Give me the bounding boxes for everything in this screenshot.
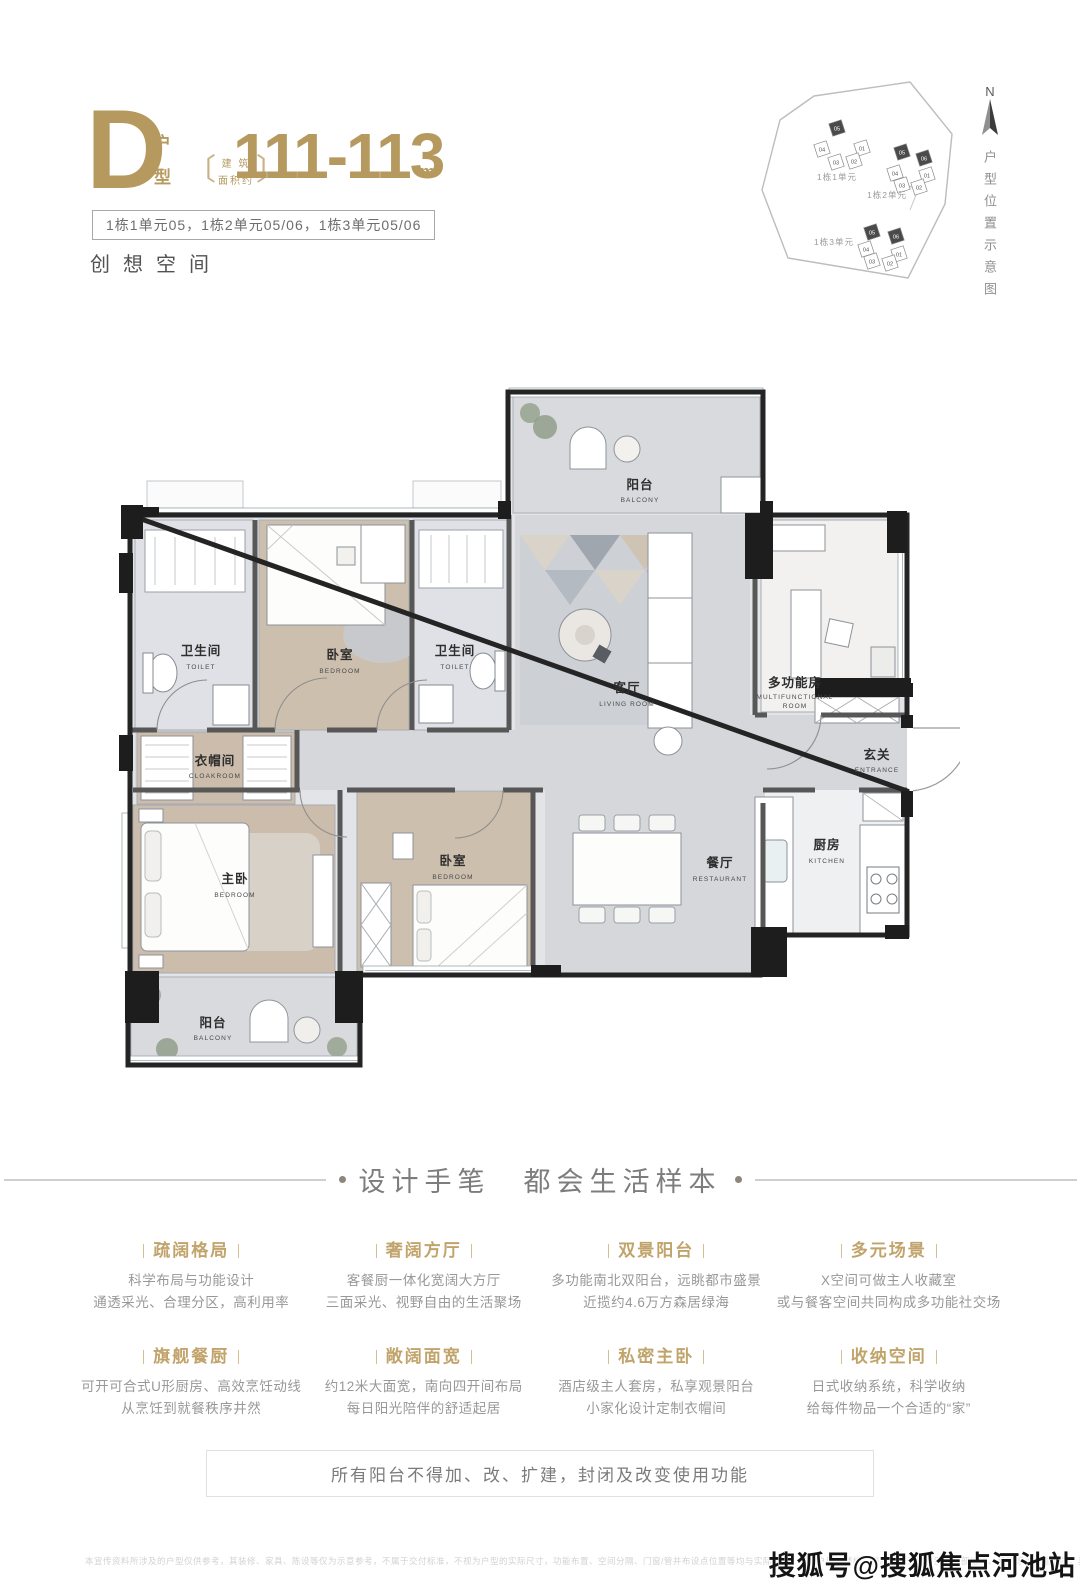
label-bedroom-mid-en: BEDROOM bbox=[432, 874, 473, 881]
label-toilet-right-en: TOILET bbox=[440, 664, 469, 671]
balcony-basin bbox=[570, 427, 606, 469]
room-cloakroom bbox=[137, 732, 295, 804]
site-cluster-label: 1栋1单元 bbox=[817, 172, 857, 182]
feature-line: 从烹饪到就餐秩序井然 bbox=[78, 1398, 305, 1420]
unit-type-label: 户 型 bbox=[154, 129, 171, 188]
feature-line: 近揽约4.6万方森居绿海 bbox=[543, 1292, 770, 1314]
floor-plan: 阳台 BALCONY 卫生间 TOILET 卧室 BEDROOM 卫生间 TOI… bbox=[115, 385, 960, 1075]
feature-title: 收纳空间 bbox=[832, 1342, 946, 1367]
balcony-table bbox=[294, 1017, 320, 1043]
label-living-zh: 客厅 bbox=[612, 680, 640, 695]
label-multi-en2: ROOM bbox=[783, 703, 808, 710]
feature-line: 给每件物品一个合适的“家” bbox=[776, 1398, 1003, 1420]
site-unit-number: 03 bbox=[869, 259, 875, 265]
site-unit-number: 06 bbox=[893, 234, 899, 240]
label-bedroom-top-en: BEDROOM bbox=[319, 668, 360, 675]
site-plan-units: 05040103021栋1单元0506040301021栋2单元05060403… bbox=[814, 120, 935, 271]
nightstand bbox=[139, 955, 163, 968]
feature-line: 酒店级主人套房，私享观景阳台 bbox=[543, 1376, 770, 1398]
site-cluster-label: 1栋3单元 bbox=[814, 237, 854, 247]
side-cabinet bbox=[393, 833, 413, 859]
label-multi-en1: MULTIFUNCTIONAL bbox=[756, 694, 833, 701]
area-unit: m² bbox=[420, 162, 441, 182]
feature-card: 疏阔格局 科学布局与功能设计通透采光、合理分区，高利用率 bbox=[78, 1236, 305, 1315]
balcony-basin bbox=[250, 1000, 288, 1042]
toilet-tank bbox=[495, 651, 505, 691]
label-kitchen-en: KITCHEN bbox=[809, 858, 845, 865]
heading-line-left bbox=[4, 1179, 326, 1181]
feature-card: 私密主卧 酒店级主人套房，私享观景阳台小家化设计定制衣帽间 bbox=[543, 1342, 770, 1421]
dresser bbox=[313, 855, 333, 947]
toilet-fixture bbox=[470, 653, 496, 689]
feature-line: 每日阳光陪伴的舒适起居 bbox=[311, 1398, 538, 1420]
label-balcony-top-en: BALCONY bbox=[621, 497, 660, 504]
plant-icon bbox=[327, 1037, 347, 1057]
wardrobe bbox=[361, 883, 391, 967]
feature-card: 多元场景 X空间可做主人收藏室或与餐客空间共同构成多功能社交场 bbox=[776, 1236, 1003, 1315]
label-dining-en: RESTAURANT bbox=[693, 876, 748, 883]
slogan: 创想空间 bbox=[90, 248, 222, 277]
wardrobe bbox=[361, 525, 405, 583]
desk bbox=[791, 590, 821, 678]
kitchen-sink bbox=[763, 840, 787, 882]
site-plan-caption: 户型位置示意图 bbox=[980, 150, 999, 304]
balcony-table bbox=[614, 436, 640, 462]
label-toilet-left-en: TOILET bbox=[186, 664, 215, 671]
site-unit: 03 bbox=[828, 154, 844, 170]
site-unit-number: 03 bbox=[899, 183, 905, 189]
plant-icon bbox=[533, 415, 557, 439]
unit-type-char-1: 户 bbox=[154, 129, 171, 154]
units-box: 1栋1单元05，1栋2单元05/06，1栋3单元05/06 bbox=[92, 210, 435, 240]
label-multi-zh: 多功能房 bbox=[768, 675, 822, 690]
feature-title: 旗舰餐厨 bbox=[134, 1342, 248, 1367]
feature-title: 敞阔面宽 bbox=[367, 1342, 481, 1367]
bench bbox=[871, 647, 895, 677]
feature-title: 疏阔格局 bbox=[134, 1236, 248, 1261]
unit-type-char-2: 型 bbox=[154, 163, 171, 188]
room-bedroom-mid bbox=[357, 791, 531, 971]
label-entrance-zh: 玄关 bbox=[863, 747, 890, 762]
compass: N bbox=[974, 84, 1006, 142]
site-unit-number: 01 bbox=[896, 252, 902, 258]
flyer-page: D 户 型 〔 建 筑 面积约 〕 111-113 m² 1栋1单元05，1栋2… bbox=[0, 0, 1080, 1593]
feature-title: 多元场景 bbox=[832, 1236, 946, 1261]
feature-card: 收纳空间 日式收纳系统，科学收纳给每件物品一个合适的“家” bbox=[776, 1342, 1003, 1421]
heading-dot-right bbox=[735, 1176, 742, 1183]
section-heading: 设计手笔 都会生活样本 bbox=[0, 1160, 1080, 1199]
feature-line: 约12米大面宽，南向四开间布局 bbox=[311, 1376, 538, 1398]
site-unit-number: 04 bbox=[892, 171, 898, 177]
room-balcony-bottom bbox=[131, 977, 357, 1062]
site-plan: 05040103021栋1单元0506040301021栋2单元05060403… bbox=[752, 72, 964, 307]
label-dining-zh: 餐厅 bbox=[705, 855, 733, 870]
site-unit-number: 06 bbox=[921, 156, 927, 162]
feature-title: 双景阳台 bbox=[599, 1236, 713, 1261]
site-unit: 06 bbox=[916, 150, 932, 166]
label-toilet-left-zh: 卫生间 bbox=[181, 643, 222, 658]
site-unit: 06 bbox=[888, 228, 904, 244]
label-bedroom-mid-zh: 卧室 bbox=[439, 853, 466, 868]
sink bbox=[213, 685, 249, 725]
room-toilet-right bbox=[413, 520, 509, 730]
pouf bbox=[654, 727, 682, 755]
feature-line: 小家化设计定制衣帽间 bbox=[543, 1398, 770, 1420]
site-unit: 05 bbox=[864, 224, 880, 240]
nightstand bbox=[139, 809, 163, 822]
feature-card: 双景阳台 多功能南北双阳台，远眺都市盛景近揽约4.6万方森居绿海 bbox=[543, 1236, 770, 1315]
exterior-ledge bbox=[147, 481, 243, 508]
label-balcony-top-zh: 阳台 bbox=[626, 477, 653, 492]
site-unit-number: 02 bbox=[916, 185, 922, 191]
front-door-arc bbox=[907, 728, 960, 791]
balcony-notice: 所有阳台不得加、改、扩建，封闭及改变使用功能 bbox=[206, 1450, 874, 1497]
room-master bbox=[133, 805, 335, 973]
feature-line: 客餐厨一体化宽阔大方厅 bbox=[311, 1270, 538, 1292]
feature-card: 敞阔面宽 约12米大面宽，南向四开间布局每日阳光陪伴的舒适起居 bbox=[311, 1342, 538, 1421]
site-unit-number: 03 bbox=[833, 160, 839, 166]
exterior-ledge bbox=[413, 481, 501, 508]
label-cloakroom-zh: 衣帽间 bbox=[195, 753, 236, 768]
site-unit-number: 04 bbox=[863, 247, 869, 253]
site-unit-number: 02 bbox=[851, 159, 857, 165]
room-balcony-top bbox=[513, 395, 761, 513]
site-unit-number: 05 bbox=[869, 230, 875, 236]
feature-line: X空间可做主人收藏室 bbox=[776, 1270, 1003, 1292]
dining-table bbox=[573, 833, 681, 905]
label-bedroom-top-zh: 卧室 bbox=[326, 647, 353, 662]
desk-chair bbox=[337, 547, 355, 565]
site-cluster-label: 1栋2单元 bbox=[867, 190, 907, 200]
label-balcony-bottom-zh: 阳台 bbox=[199, 1015, 226, 1030]
label-cloakroom-en: CLOAKROOM bbox=[189, 773, 241, 780]
feature-card: 奢阔方厅 客餐厨一体化宽阔大方厅三面采光、视野自由的生活聚场 bbox=[311, 1236, 538, 1315]
heading-dot-left bbox=[339, 1176, 346, 1183]
site-unit-number: 05 bbox=[834, 126, 840, 132]
site-unit-number: 01 bbox=[924, 173, 930, 179]
site-unit-number: 01 bbox=[859, 146, 865, 152]
label-master-en: BEDROOM bbox=[214, 892, 255, 899]
shelf bbox=[767, 525, 825, 551]
feature-line: 日式收纳系统，科学收纳 bbox=[776, 1376, 1003, 1398]
label-master-zh: 主卧 bbox=[221, 871, 248, 886]
balcony-cabinet bbox=[721, 477, 761, 513]
feature-line: 三面采光、视野自由的生活聚场 bbox=[311, 1292, 538, 1314]
heading-line-right bbox=[755, 1179, 1077, 1181]
label-entrance-en: ENTRANCE bbox=[855, 767, 900, 774]
watermark: 搜狐号@搜狐焦点河池站 bbox=[769, 1544, 1076, 1583]
room-living bbox=[520, 533, 692, 755]
room-dining bbox=[573, 815, 681, 923]
site-unit-number: 05 bbox=[899, 150, 905, 156]
site-unit: 05 bbox=[894, 144, 910, 160]
sink bbox=[419, 685, 453, 723]
section-heading-text: 设计手笔 都会生活样本 bbox=[359, 1160, 722, 1199]
feature-line: 或与餐客空间共同构成多功能社交场 bbox=[776, 1292, 1003, 1314]
feature-line: 科学布局与功能设计 bbox=[78, 1270, 305, 1292]
label-kitchen-zh: 厨房 bbox=[813, 837, 840, 852]
area-value: 111-113 bbox=[233, 124, 443, 188]
site-unit-number: 04 bbox=[819, 147, 825, 153]
site-unit-number: 02 bbox=[887, 261, 893, 267]
feature-grid: 疏阔格局 科学布局与功能设计通透采光、合理分区，高利用率 奢阔方厅 客餐厨一体化… bbox=[78, 1236, 1002, 1420]
label-toilet-right-zh: 卫生间 bbox=[435, 643, 476, 658]
feature-title: 奢阔方厅 bbox=[367, 1236, 481, 1261]
bracket-open: 〔 bbox=[186, 156, 216, 186]
label-balcony-bottom-en: BALCONY bbox=[194, 1035, 233, 1042]
stove bbox=[867, 867, 899, 913]
toilet-tank bbox=[143, 653, 153, 693]
feature-card: 旗舰餐厨 可开可合式U形厨房、高效烹饪动线从烹饪到就餐秩序井然 bbox=[78, 1342, 305, 1421]
room-bedroom-top bbox=[259, 520, 423, 730]
site-unit: 04 bbox=[814, 141, 830, 157]
label-living-en: LIVING ROOM bbox=[599, 701, 654, 708]
compass-north-icon bbox=[981, 99, 999, 137]
chair bbox=[825, 619, 853, 647]
feature-line: 可开可合式U形厨房、高效烹饪动线 bbox=[78, 1376, 305, 1398]
feature-line: 通透采光、合理分区，高利用率 bbox=[78, 1292, 305, 1314]
feature-title: 私密主卧 bbox=[599, 1342, 713, 1367]
site-unit: 05 bbox=[829, 120, 845, 136]
compass-north-label: N bbox=[974, 84, 1006, 99]
feature-line: 多功能南北双阳台，远眺都市盛景 bbox=[543, 1270, 770, 1292]
